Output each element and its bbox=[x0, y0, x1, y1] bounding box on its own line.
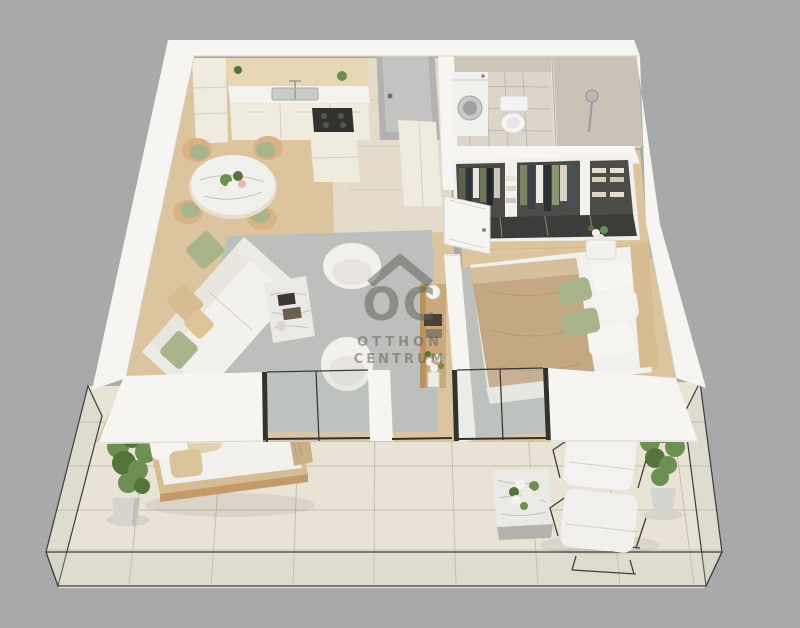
books bbox=[424, 314, 442, 326]
open-door-track bbox=[392, 438, 452, 439]
door-handle bbox=[388, 94, 393, 99]
hall-tall-cabinet bbox=[398, 120, 442, 206]
apartment-3d-scene bbox=[0, 0, 800, 628]
floorplan-render: OC OTTHON CENTRUM bbox=[0, 0, 800, 628]
coffee-table bbox=[264, 276, 315, 343]
front-wall-right bbox=[548, 368, 698, 442]
shelf-plant bbox=[234, 66, 242, 74]
console-table bbox=[420, 284, 446, 388]
sliding-door-bedroom bbox=[457, 368, 546, 441]
dining-table bbox=[189, 155, 277, 219]
cooktop bbox=[312, 108, 354, 132]
door-handle bbox=[482, 228, 486, 232]
washing-machine bbox=[452, 72, 488, 136]
wall-top bbox=[168, 40, 640, 56]
terrace-coffee-table bbox=[492, 468, 553, 540]
books bbox=[277, 293, 295, 306]
table-lamp bbox=[426, 285, 440, 299]
pouf-seat bbox=[332, 259, 372, 285]
sliding-door-living bbox=[266, 370, 370, 441]
wardrobe-open-door bbox=[444, 196, 490, 254]
front-wall-left bbox=[98, 372, 266, 444]
kitchen-tall-cabinet-left bbox=[192, 58, 228, 144]
counter-plant bbox=[337, 71, 347, 81]
